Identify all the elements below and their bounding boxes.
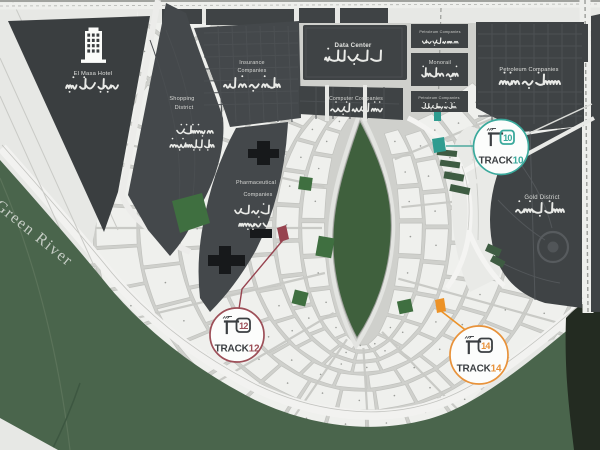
svg-text:10: 10 [503, 133, 512, 143]
svg-text:TRACK10: TRACK10 [479, 156, 524, 167]
svg-text:TRACK12: TRACK12 [215, 344, 260, 355]
svg-text:Petroleum Companies: Petroleum Companies [419, 30, 460, 34]
svg-text:Shopping: Shopping [169, 96, 194, 102]
svg-text:Gold District: Gold District [524, 195, 559, 201]
svg-text:Petroleum Companies: Petroleum Companies [418, 96, 459, 100]
svg-text:14: 14 [481, 341, 490, 351]
svg-text:Companies: Companies [237, 68, 266, 74]
svg-text:District: District [175, 105, 194, 111]
svg-text:Data Center: Data Center [335, 42, 372, 49]
svg-text:TRACK14: TRACK14 [457, 364, 502, 375]
svg-text:12: 12 [239, 321, 248, 331]
svg-text:Companies: Companies [243, 192, 272, 198]
svg-text:Insurance: Insurance [239, 60, 264, 66]
svg-text:Monorail: Monorail [429, 60, 451, 66]
svg-text:El Masa Hotel: El Masa Hotel [74, 71, 113, 77]
svg-text:Petroleum Companies: Petroleum Companies [499, 67, 558, 73]
svg-text:Pharmaceutical: Pharmaceutical [236, 180, 276, 186]
svg-text:Computer Companies: Computer Companies [329, 96, 383, 102]
